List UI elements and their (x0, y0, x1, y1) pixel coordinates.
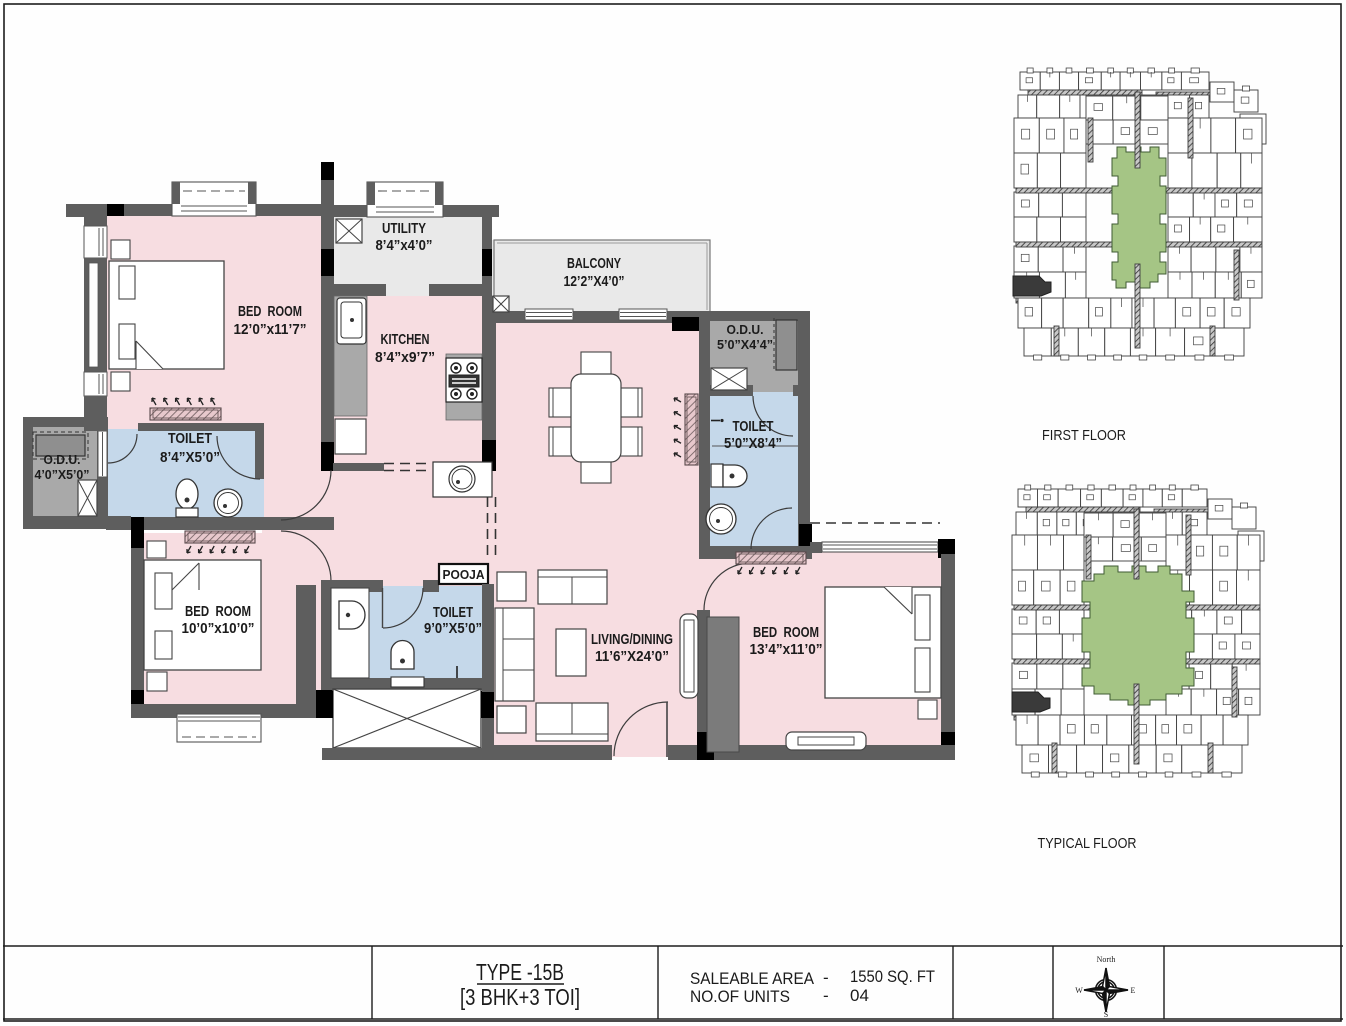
svg-text:-: - (823, 968, 829, 987)
svg-text:9’0”X5’0”: 9’0”X5’0” (424, 621, 482, 637)
svg-text:10’0”x10’0”: 10’0”x10’0” (182, 620, 255, 637)
svg-text:O.D.U.: O.D.U. (44, 452, 81, 467)
svg-text:-: - (823, 986, 829, 1005)
svg-text:5’0”X8’4”: 5’0”X8’4” (724, 436, 782, 452)
svg-text:8’4”X5’0”: 8’4”X5’0” (160, 450, 220, 466)
svg-text:BED ROOM: BED ROOM (185, 603, 251, 620)
svg-text:North: North (1097, 955, 1116, 964)
svg-text:TOILET: TOILET (168, 431, 212, 447)
svg-text:8’4”x9’7”: 8’4”x9’7” (375, 350, 435, 366)
svg-text:5’0”X4’4”: 5’0”X4’4” (717, 337, 773, 352)
svg-text:8’4”x4’0”: 8’4”x4’0” (376, 238, 433, 254)
svg-text:FIRST FLOOR: FIRST FLOOR (1042, 427, 1126, 444)
svg-text:12’2”X4’0”: 12’2”X4’0” (564, 274, 625, 290)
svg-text:13’4”x11’0”: 13’4”x11’0” (750, 641, 823, 658)
svg-text:POOJA: POOJA (443, 567, 486, 582)
svg-text:12’0”x11’7”: 12’0”x11’7” (234, 321, 307, 338)
svg-text:E: E (1131, 986, 1136, 995)
svg-text:1550 SQ. FT: 1550 SQ. FT (850, 967, 935, 986)
svg-text:TYPICAL FLOOR: TYPICAL FLOOR (1038, 835, 1137, 852)
svg-text:LIVING/DINING: LIVING/DINING (591, 631, 673, 648)
svg-text:BED ROOM: BED ROOM (753, 624, 819, 641)
svg-text:S: S (1104, 1010, 1108, 1019)
svg-text:11’6”X24’0”: 11’6”X24’0” (595, 648, 669, 665)
svg-text:KITCHEN: KITCHEN (381, 332, 430, 348)
svg-text:TOILET: TOILET (433, 605, 473, 621)
svg-text:TOILET: TOILET (733, 419, 774, 435)
svg-text:O.D.U.: O.D.U. (727, 322, 764, 337)
svg-text:UTILITY: UTILITY (382, 221, 426, 237)
svg-text:TYPE -15B: TYPE -15B (476, 959, 564, 985)
svg-text:SALEABLE AREA: SALEABLE AREA (690, 969, 815, 988)
svg-text:NO.OF UNITS: NO.OF UNITS (690, 987, 790, 1006)
svg-text:[3 BHK+3 TOI]: [3 BHK+3 TOI] (460, 984, 580, 1010)
svg-text:4’0”X5’0”: 4’0”X5’0” (35, 467, 90, 482)
svg-text:BED ROOM: BED ROOM (238, 303, 302, 320)
svg-text:BALCONY: BALCONY (567, 256, 621, 272)
svg-text:04: 04 (850, 986, 869, 1005)
svg-text:W: W (1075, 986, 1083, 995)
